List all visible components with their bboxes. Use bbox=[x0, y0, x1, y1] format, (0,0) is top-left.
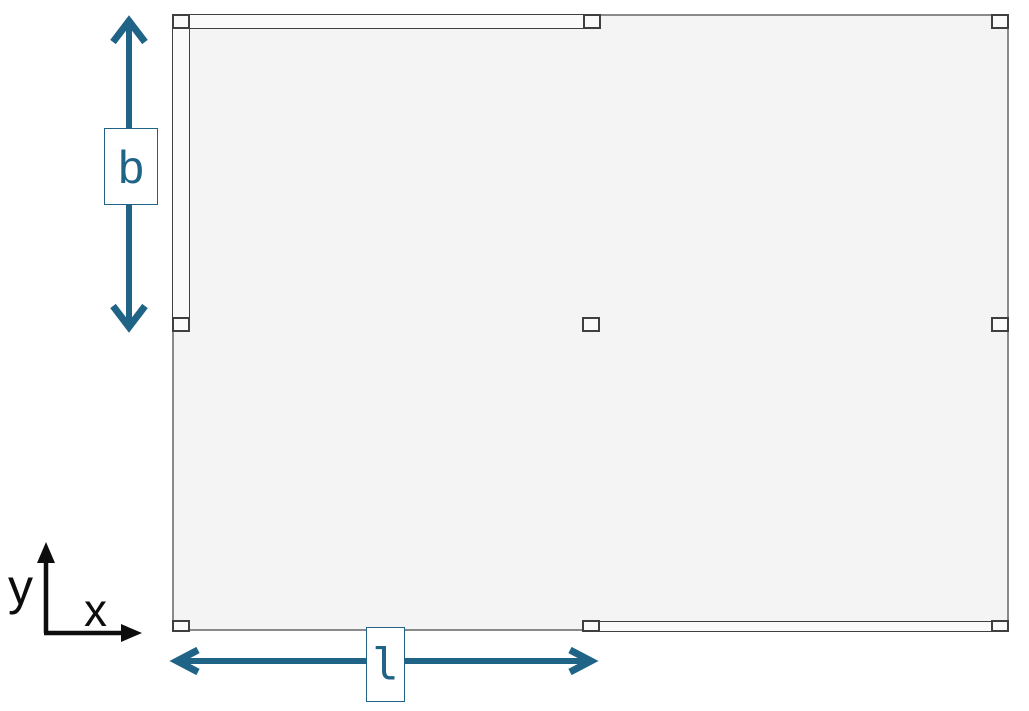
left-edge-support bbox=[172, 14, 190, 332]
b-dimension-label: b bbox=[104, 128, 158, 205]
bottom-edge-support bbox=[591, 621, 1009, 632]
node-marker-bottom-mid bbox=[582, 620, 600, 632]
node-marker-right-mid bbox=[991, 317, 1009, 332]
l-dimension-label: l bbox=[366, 627, 405, 702]
node-marker-top-mid bbox=[583, 14, 601, 29]
node-marker-bottom-right bbox=[991, 620, 1009, 632]
node-marker-top-right bbox=[991, 14, 1009, 29]
node-marker-top-left bbox=[172, 14, 190, 29]
top-edge-support bbox=[172, 14, 601, 29]
diagram-canvas: b l y x bbox=[0, 0, 1029, 711]
x-axis-arrowhead-icon bbox=[121, 624, 142, 642]
node-marker-bottom-left bbox=[172, 620, 190, 632]
node-marker-center bbox=[582, 317, 600, 332]
node-marker-left-mid bbox=[172, 317, 190, 332]
x-axis-label: x bbox=[84, 587, 107, 633]
y-axis-label: y bbox=[8, 562, 33, 612]
y-axis-arrowhead-icon bbox=[37, 542, 55, 563]
